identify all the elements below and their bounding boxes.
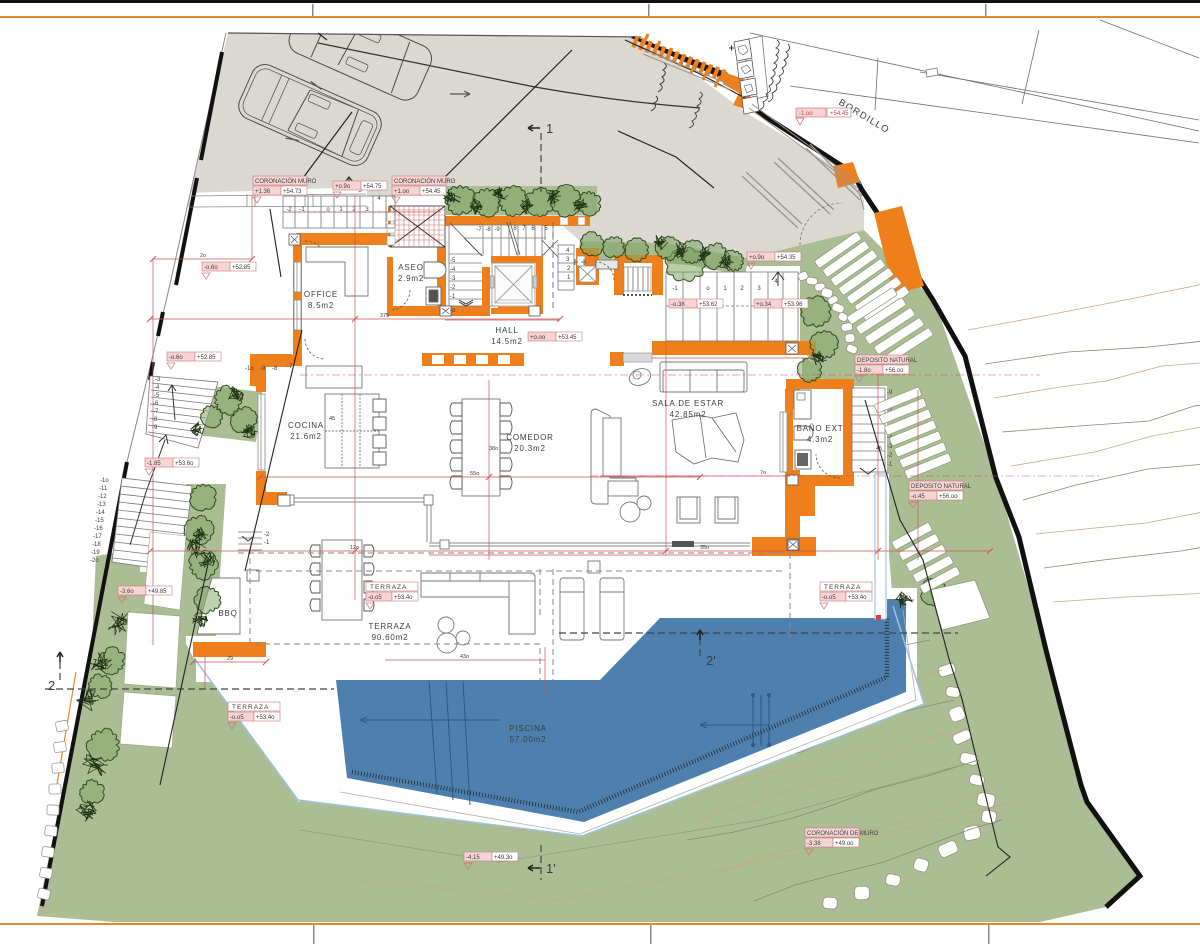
svg-text:-11: -11 — [99, 486, 108, 492]
svg-text:-5: -5 — [154, 393, 160, 399]
svg-text:21.6m2: 21.6m2 — [290, 432, 321, 441]
svg-text:-13: -13 — [97, 502, 106, 508]
svg-text:-19: -19 — [91, 550, 100, 556]
svg-text:+52.85: +52.85 — [197, 355, 216, 361]
svg-text:+53.6o: +53.6o — [175, 461, 194, 467]
svg-text:-16: -16 — [94, 526, 103, 532]
svg-text:OFFICE: OFFICE — [304, 290, 338, 299]
svg-text:+53.96: +53.96 — [784, 302, 803, 308]
svg-text:+o.34: +o.34 — [756, 302, 772, 308]
svg-text:14.5m2: 14.5m2 — [491, 337, 522, 346]
svg-text:-9: -9 — [494, 227, 500, 233]
svg-text:SALA DE ESTAR: SALA DE ESTAR — [652, 399, 724, 408]
svg-text:PISCINA: PISCINA — [509, 724, 547, 733]
svg-text:-o.o5: -o.o5 — [822, 595, 836, 601]
svg-text:-3: -3 — [155, 377, 161, 383]
svg-text:-o.6o: -o.6o — [169, 355, 183, 361]
svg-text:-o.o5: -o.o5 — [230, 715, 244, 721]
svg-text:+54.73: +54.73 — [283, 189, 302, 195]
svg-text:+1.36: +1.36 — [255, 189, 271, 195]
svg-text:-15: -15 — [95, 518, 104, 524]
svg-text:-2o: -2o — [90, 558, 99, 564]
svg-text:+53.4o: +53.4o — [256, 715, 275, 721]
svg-text:-7: -7 — [153, 409, 159, 415]
svg-text:BBQ: BBQ — [218, 609, 237, 618]
svg-text:2o: 2o — [200, 253, 206, 259]
svg-text:-3: -3 — [450, 276, 456, 282]
svg-text:12o: 12o — [350, 545, 359, 551]
svg-text:-6: -6 — [153, 401, 159, 407]
svg-text:-12: -12 — [98, 494, 107, 500]
svg-text:-8: -8 — [485, 227, 491, 233]
svg-text:BAÑO EXT: BAÑO EXT — [797, 424, 844, 433]
svg-text:TERRAZA: TERRAZA — [824, 584, 861, 591]
svg-text:TERRAZA: TERRAZA — [370, 584, 407, 591]
svg-text:+1.oo: +1.oo — [394, 189, 410, 195]
svg-text:-1: -1 — [887, 462, 893, 468]
svg-text:55o: 55o — [470, 471, 479, 477]
svg-text:CORONACIÓN MURO: CORONACIÓN MURO — [394, 178, 456, 185]
svg-text:-4: -4 — [450, 267, 456, 273]
svg-text:-4: -4 — [154, 385, 160, 391]
svg-text:35o: 35o — [700, 545, 709, 551]
svg-text:DEPOSITO NATURAL: DEPOSITO NATURAL — [911, 484, 972, 490]
svg-text:-14: -14 — [96, 510, 105, 516]
svg-text:-1.85: -1.85 — [147, 461, 161, 467]
svg-text:-3.38: -3.38 — [807, 841, 821, 847]
svg-text:-o.o5: -o.o5 — [368, 595, 382, 601]
svg-text:+54.75: +54.75 — [363, 184, 382, 190]
svg-text:TERRAZA: TERRAZA — [369, 622, 412, 631]
svg-text:-2: -2 — [887, 453, 893, 459]
svg-text:7o: 7o — [760, 470, 766, 476]
svg-text:+o.oo: +o.oo — [530, 335, 546, 341]
svg-text:20.3m2: 20.3m2 — [514, 444, 545, 453]
svg-text:-o.6o: -o.6o — [204, 265, 218, 271]
svg-text:-1.8o: -1.8o — [857, 368, 871, 374]
svg-text:+49.85: +49.85 — [148, 589, 167, 595]
svg-text:-1: -1 — [672, 286, 678, 292]
svg-text:29: 29 — [227, 656, 233, 662]
svg-text:+54.45: +54.45 — [830, 111, 849, 117]
svg-text:COCINA: COCINA — [288, 421, 324, 430]
svg-text:COMEDOR: COMEDOR — [506, 433, 553, 442]
svg-text:TERRAZA: TERRAZA — [232, 704, 269, 711]
svg-text:-2: -2 — [264, 532, 270, 538]
svg-text:+53.62: +53.62 — [699, 302, 718, 308]
svg-text:-1o: -1o — [245, 366, 254, 372]
svg-text:-2: -2 — [450, 285, 456, 291]
svg-text:-1.oo: -1.oo — [799, 111, 813, 117]
svg-text:375: 375 — [380, 313, 389, 319]
svg-text:-7: -7 — [287, 364, 293, 370]
svg-text:-o.45: -o.45 — [911, 494, 925, 500]
svg-text:-3.6o: -3.6o — [120, 589, 134, 595]
svg-text:-7: -7 — [476, 227, 482, 233]
svg-text:+54.45: +54.45 — [422, 189, 441, 195]
svg-text:ASEO: ASEO — [398, 263, 423, 272]
svg-text:+52.85: +52.85 — [232, 265, 251, 271]
svg-text:-1: -1 — [450, 294, 456, 300]
svg-text:+54.35: +54.35 — [777, 255, 796, 261]
svg-text:4.3m2: 4.3m2 — [807, 435, 833, 444]
svg-text:+53.4o: +53.4o — [394, 595, 413, 601]
svg-text:CORONACIÓN DE MURO: CORONACIÓN DE MURO — [807, 830, 879, 837]
svg-text:42.85m2: 42.85m2 — [670, 410, 707, 419]
svg-text:-1o: -1o — [100, 478, 109, 484]
svg-text:+49.3o: +49.3o — [494, 855, 513, 861]
svg-text:90.60m2: 90.60m2 — [372, 633, 409, 642]
svg-text:+53.45: +53.45 — [558, 335, 577, 341]
svg-text:+o.9o: +o.9o — [335, 184, 351, 190]
svg-text:-18: -18 — [92, 542, 101, 548]
svg-text:2.9m2: 2.9m2 — [398, 274, 424, 283]
svg-text:DEPOSITO NATURAL: DEPOSITO NATURAL — [857, 358, 918, 364]
svg-text:43o: 43o — [460, 654, 469, 660]
svg-text:-9: -9 — [887, 390, 893, 396]
svg-text:-8: -8 — [272, 366, 278, 372]
svg-text:45: 45 — [329, 416, 335, 422]
svg-text:-9: -9 — [260, 366, 266, 372]
svg-text:1': 1' — [546, 861, 556, 876]
svg-text:-5: -5 — [450, 258, 456, 264]
svg-text:-17: -17 — [93, 534, 102, 540]
svg-text:-o.38: -o.38 — [671, 302, 685, 308]
svg-text:+56.oo: +56.oo — [885, 368, 904, 374]
svg-text:+56.oo: +56.oo — [939, 494, 958, 500]
svg-text:-4.15: -4.15 — [466, 855, 480, 861]
svg-text:38o: 38o — [489, 446, 498, 452]
svg-text:2': 2' — [706, 653, 716, 668]
svg-text:+49.oo: +49.oo — [835, 841, 854, 847]
svg-text:+53.4o: +53.4o — [848, 595, 867, 601]
svg-text:HALL: HALL — [495, 326, 518, 335]
svg-text:-1: -1 — [264, 540, 270, 546]
svg-text:57.00m2: 57.00m2 — [510, 735, 547, 744]
svg-text:2: 2 — [48, 678, 55, 693]
svg-text:CORONACIÓN MURO: CORONACIÓN MURO — [255, 178, 317, 185]
svg-text:1: 1 — [546, 121, 553, 136]
svg-text:8.5m2: 8.5m2 — [308, 301, 334, 310]
svg-text:+o.9o: +o.9o — [749, 255, 765, 261]
